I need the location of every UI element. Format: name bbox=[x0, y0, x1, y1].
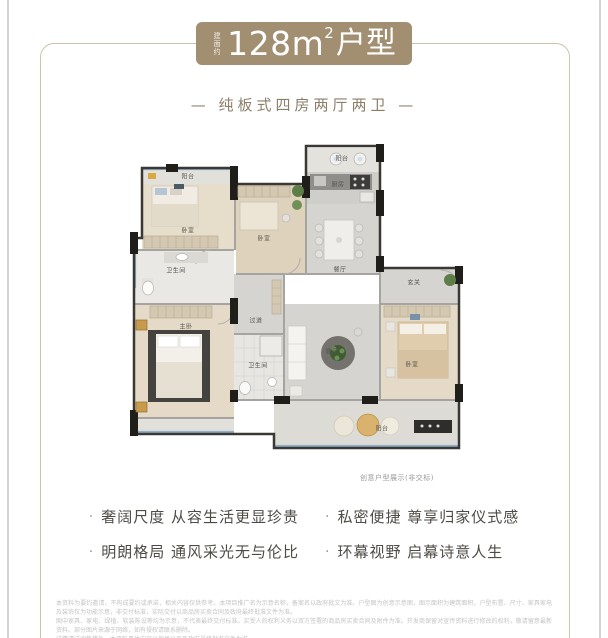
room-label: 卫生间 bbox=[248, 361, 268, 370]
feature-item: ·环幕视野 启幕诗意人生 bbox=[325, 541, 519, 562]
bullet-icon: · bbox=[89, 544, 94, 560]
room-label: 厨房 bbox=[331, 180, 344, 189]
disclaimer: 本资料为要约邀请，不构成要约或承诺，相关内容仅供参考。本项目推广名为示意名称，备… bbox=[56, 599, 552, 638]
disclaimer-line: 图中家具、家电、绿植、软装陈设等均为示意，不代表最终交付标准。买受人的权利义务以… bbox=[56, 617, 552, 635]
feature-text: 环幕视野 启幕诗意人生 bbox=[337, 541, 503, 562]
room-label: 玄关 bbox=[407, 278, 420, 287]
feature-text: 私密便捷 尊享归家仪式感 bbox=[337, 506, 519, 527]
area-badge: 建面约 128m 2 户型 bbox=[196, 22, 412, 65]
feature-item: ·明朗格局 通风采光无与伦比 bbox=[89, 541, 299, 562]
feature-item: ·私密便捷 尊享归家仪式感 bbox=[325, 506, 519, 527]
page: 建面约 128m 2 户型 — 纯板式四房两厅两卫 — bbox=[0, 0, 608, 638]
room-label: 主卧 bbox=[179, 322, 192, 331]
room-label: 阳台 bbox=[181, 172, 194, 181]
room-label: 阳台 bbox=[335, 154, 348, 163]
feature-list: ·奢阔尺度 从容生活更显珍贵·私密便捷 尊享归家仪式感·明朗格局 通风采光无与伦… bbox=[0, 506, 608, 562]
bullet-icon: · bbox=[89, 509, 94, 525]
disclaimer-line: 本资料为要约邀请，不构成要约或承诺，相关内容仅供参考。本项目推广名为示意名称，备… bbox=[56, 599, 552, 617]
room-label: 卧室 bbox=[257, 234, 270, 243]
area-number: 128m bbox=[227, 27, 324, 60]
room-label: 客厅 bbox=[325, 347, 338, 356]
feature-text: 明朗格局 通风采光无与伦比 bbox=[101, 541, 299, 562]
area-suffix: 户型 bbox=[336, 29, 396, 59]
plan-caption: 创意户型展示(非交标) bbox=[360, 473, 434, 483]
corridor-cabinet bbox=[272, 280, 281, 314]
room-label: 卫生间 bbox=[166, 266, 186, 275]
area-sup: 2 bbox=[324, 24, 334, 42]
balcony-deco bbox=[148, 173, 156, 179]
floorplan: 阳台卧室卧室阳台厨房餐厅玄关卫生间主卧过道卫生间客厅卧室阳台 bbox=[114, 138, 494, 458]
bullet-icon: · bbox=[325, 544, 330, 560]
feature-item: ·奢阔尺度 从容生活更显珍贵 bbox=[89, 506, 299, 527]
room-label: 卧室 bbox=[405, 360, 418, 369]
bullet-icon: · bbox=[325, 509, 330, 525]
dining-table bbox=[315, 220, 363, 260]
room-label: 餐厅 bbox=[333, 265, 346, 274]
feature-text: 奢阔尺度 从容生活更显珍贵 bbox=[101, 506, 299, 527]
room-label: 卧室 bbox=[181, 226, 194, 235]
room-label: 阳台 bbox=[375, 424, 388, 433]
unit-subtitle: — 纯板式四房两厅两卫 — bbox=[0, 94, 608, 115]
floorplan-svg bbox=[114, 138, 494, 458]
area-prefix-label: 建面约 bbox=[212, 32, 222, 56]
room-label: 过道 bbox=[249, 316, 262, 325]
